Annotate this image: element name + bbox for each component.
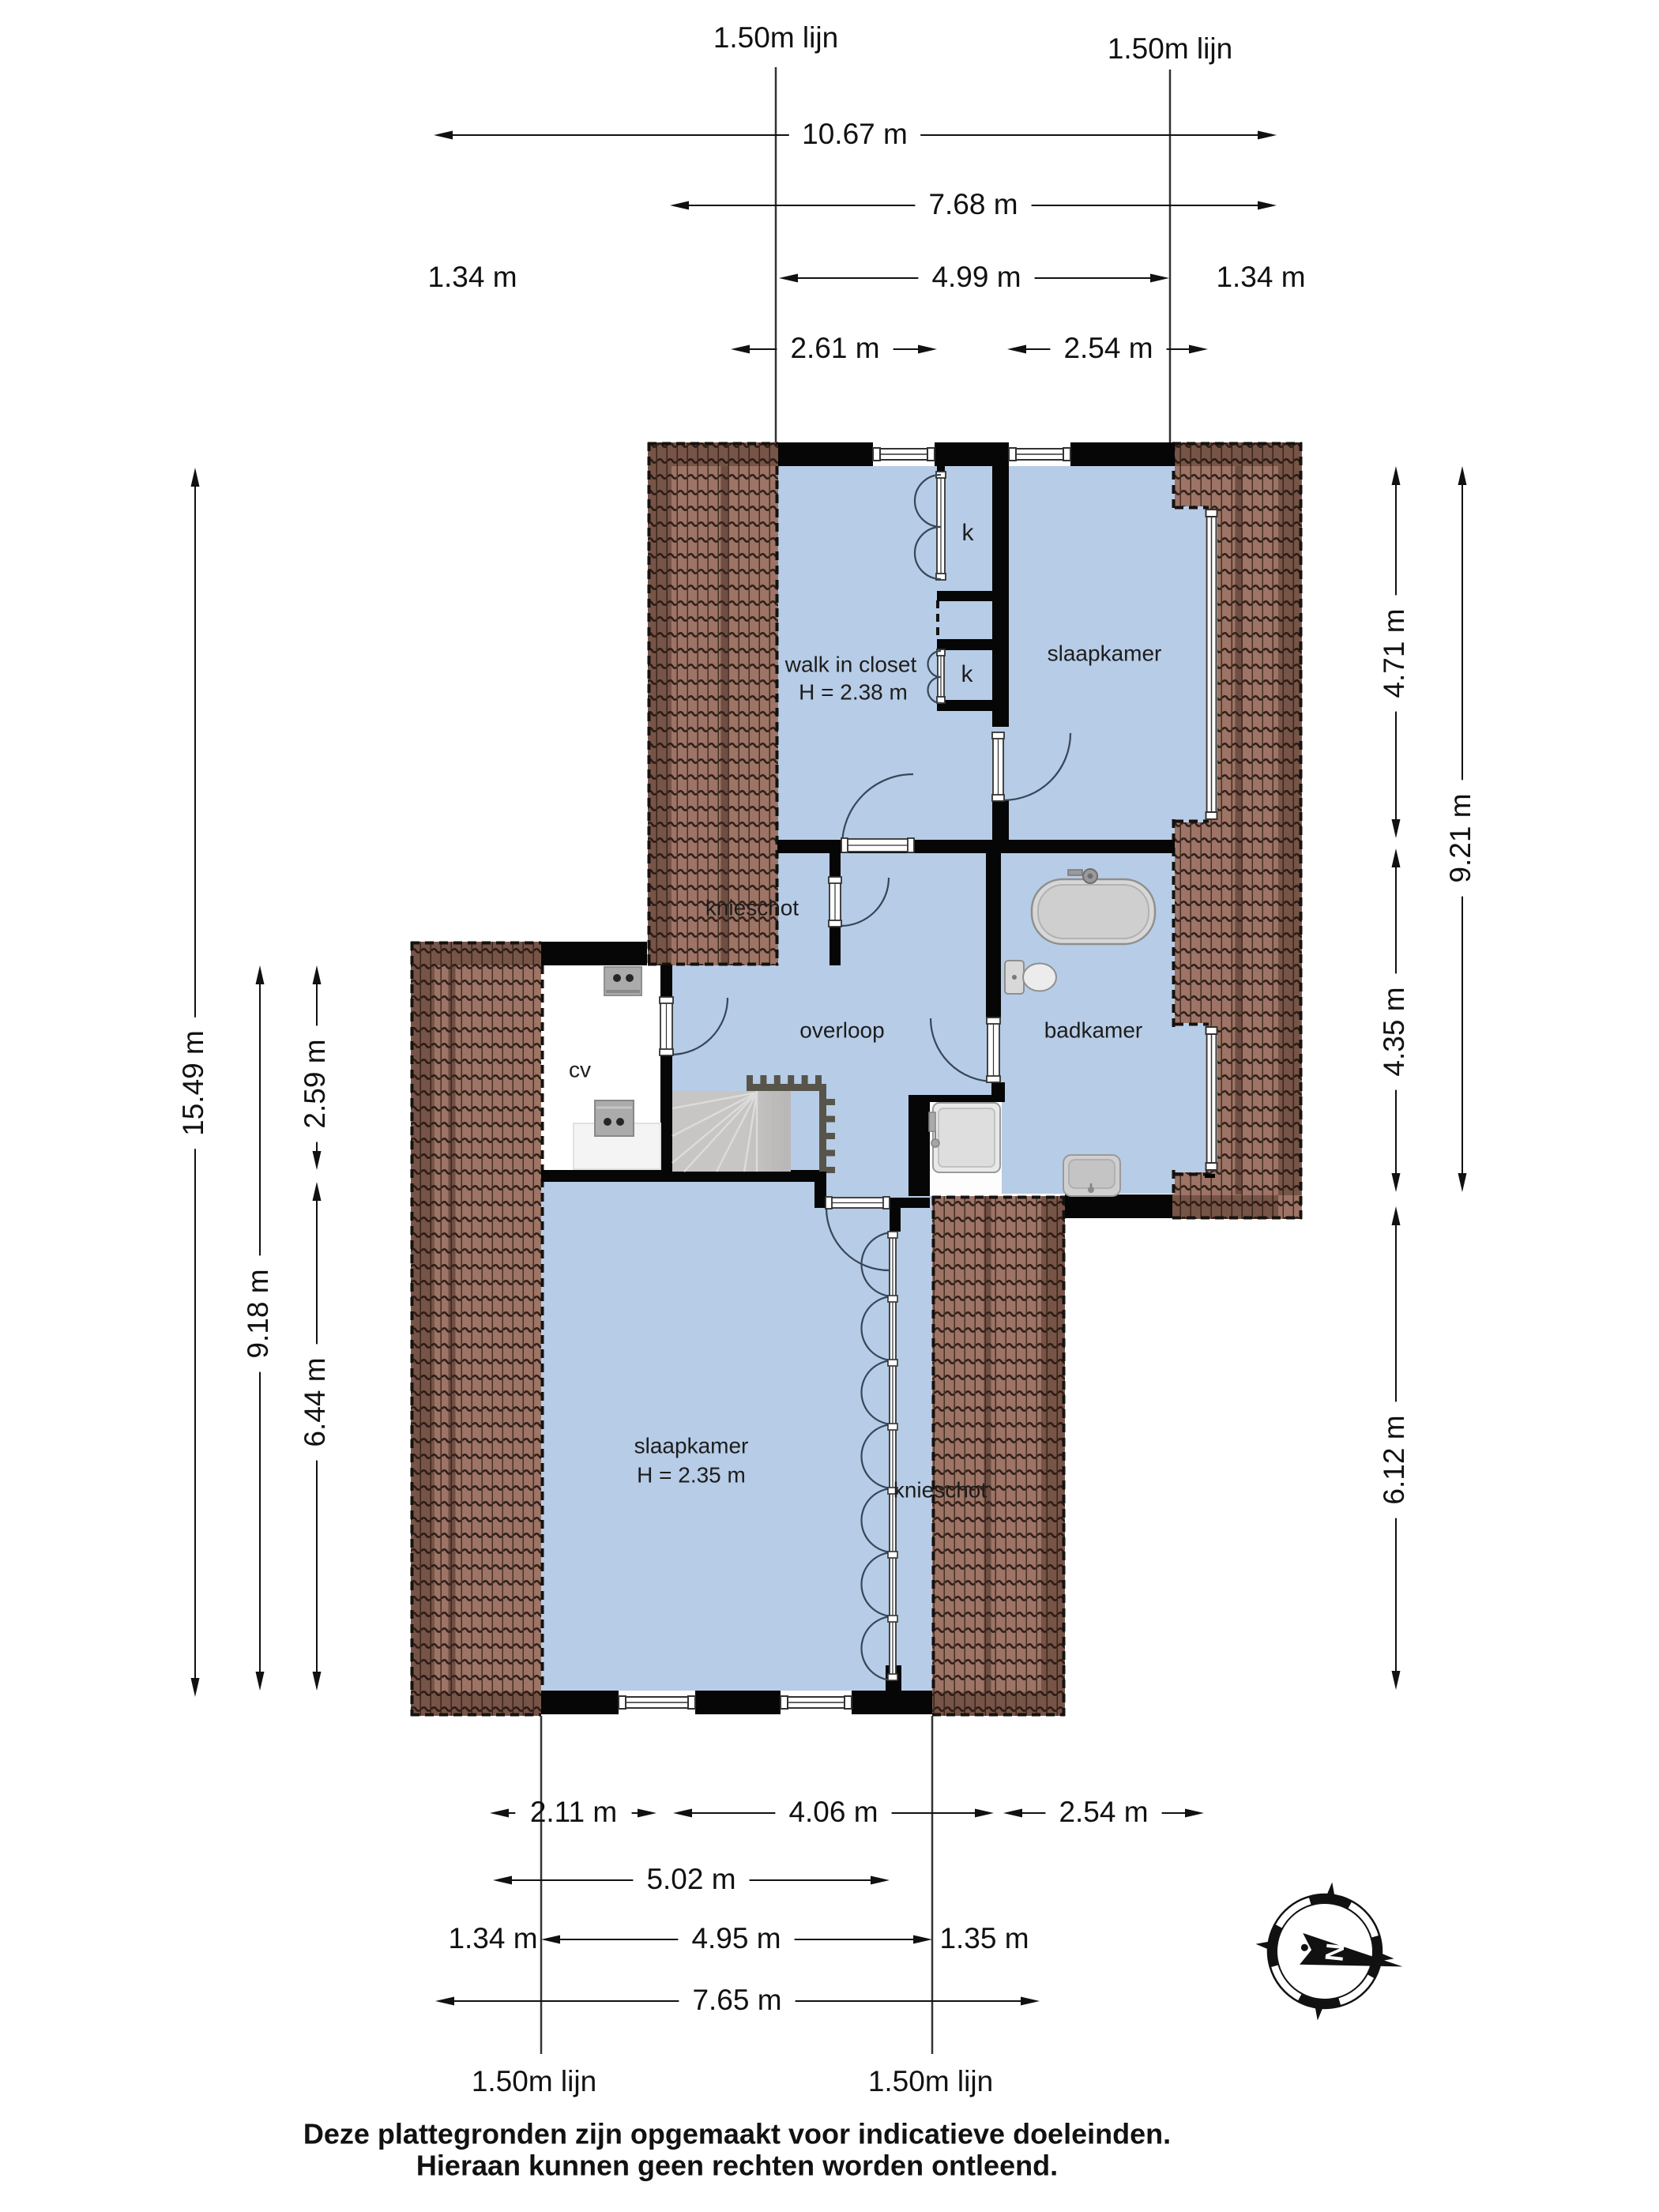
svg-text:2.11 m: 2.11 m [530,1796,617,1828]
svg-text:4.06 m: 4.06 m [788,1796,878,1828]
svg-text:4.99 m: 4.99 m [931,261,1021,293]
svg-text:2.59 m: 2.59 m [299,1039,331,1128]
svg-text:9.18 m: 9.18 m [242,1269,274,1358]
svg-text:badkamer: badkamer [1044,1018,1143,1042]
svg-text:2.54 m: 2.54 m [1059,1796,1148,1828]
svg-text:1.50m lijn: 1.50m lijn [713,21,838,54]
svg-text:4.95 m: 4.95 m [691,1922,781,1954]
svg-text:1.50m lijn: 1.50m lijn [1108,32,1232,65]
svg-text:1.50m lijn: 1.50m lijn [868,2065,993,2097]
svg-text:1.34 m: 1.34 m [427,261,517,293]
svg-text:5.02 m: 5.02 m [646,1863,735,1895]
svg-text:N: N [1319,1942,1349,1963]
svg-text:slaapkamer: slaapkamer [634,1433,749,1458]
svg-text:cv: cv [569,1057,591,1082]
svg-text:1.34 m: 1.34 m [1216,261,1305,293]
svg-text:7.65 m: 7.65 m [692,1984,781,2016]
svg-text:2.54 m: 2.54 m [1063,332,1153,364]
svg-text:2.61 m: 2.61 m [790,332,879,364]
svg-text:10.67 m: 10.67 m [802,118,908,150]
svg-text:4.71 m: 4.71 m [1378,608,1410,698]
svg-text:4.35 m: 4.35 m [1378,987,1410,1076]
svg-text:Deze plattegronden zijn opgema: Deze plattegronden zijn opgemaakt voor i… [303,2118,1171,2150]
svg-text:overloop: overloop [799,1018,884,1042]
svg-text:9.21 m: 9.21 m [1444,793,1477,882]
svg-text:k: k [962,520,975,546]
svg-text:6.12 m: 6.12 m [1378,1415,1410,1504]
svg-text:H = 2.38 m: H = 2.38 m [799,679,908,704]
svg-text:7.68 m: 7.68 m [928,188,1018,220]
svg-text:knieschot: knieschot [705,895,799,920]
svg-text:slaapkamer: slaapkamer [1048,641,1162,665]
svg-text:k: k [961,661,974,687]
svg-text:1.34 m: 1.34 m [448,1922,537,1954]
svg-text:H = 2.35 m: H = 2.35 m [637,1462,746,1487]
svg-text:1.35 m: 1.35 m [939,1922,1029,1954]
svg-text:6.44 m: 6.44 m [299,1357,331,1446]
svg-text:knieschot: knieschot [893,1477,987,1502]
svg-text:1.50m lijn: 1.50m lijn [472,2065,596,2097]
svg-text:walk in closet: walk in closet [784,652,917,676]
svg-text:15.49 m: 15.49 m [177,1030,209,1136]
svg-text:Hieraan kunnen geen rechten wo: Hieraan kunnen geen rechten worden ontle… [416,2150,1058,2182]
